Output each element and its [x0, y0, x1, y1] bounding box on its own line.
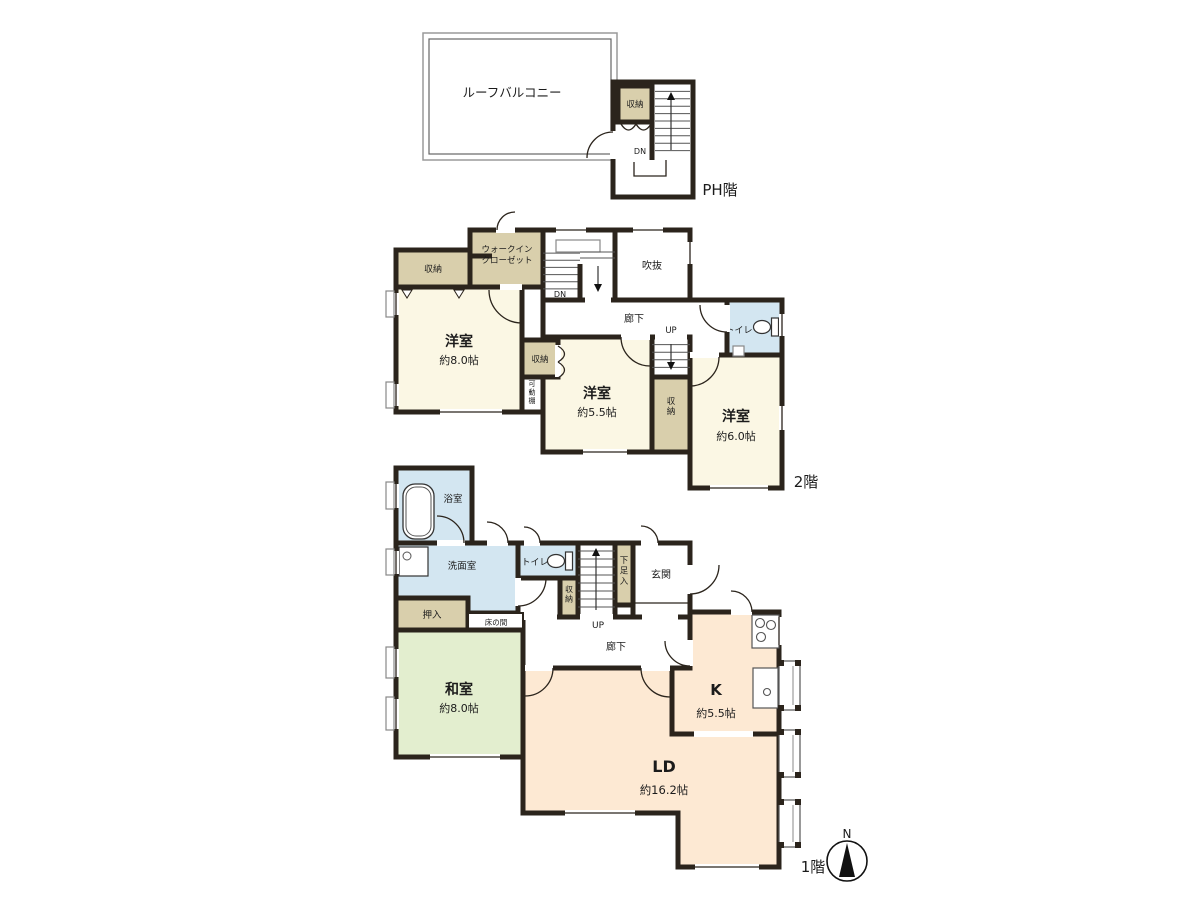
door-entrance-side-arc: [690, 565, 719, 594]
label-storage-east: 収納: [667, 396, 676, 417]
bay-window-ld-2-corner: [778, 842, 784, 848]
label-up-1f: UP: [592, 621, 605, 631]
label-dn-2f: DN: [554, 290, 566, 299]
hall-ab-opening: [524, 614, 557, 620]
label-oshiire: 押入: [422, 609, 442, 621]
bay-window-ld-2-corner: [795, 799, 801, 805]
label-washitsu-size: 約8.0帖: [439, 701, 479, 715]
bay-window-kitchen-corner: [795, 705, 801, 711]
label-entrance: 玄関: [651, 568, 671, 581]
label-washitsu: 和室: [445, 681, 473, 698]
bay-window-ld-1-corner: [778, 729, 784, 735]
bathtub: [403, 484, 434, 539]
shutter-tab-1f-4: [386, 697, 394, 730]
door-bedroom8-gap: [500, 284, 522, 290]
compass-needle: [839, 843, 855, 877]
door-ld-left-gap: [525, 665, 553, 671]
toilet-2f-remote: [733, 346, 744, 356]
label-bedroom8: 洋室: [445, 333, 473, 350]
label-hall-2f: 廊下: [624, 312, 644, 325]
toilet-1f-fixture-bowl: [548, 555, 565, 568]
door-toilet2f-gap: [724, 305, 730, 332]
floorplan-svg: ルーフバルコニーDN収納PH階DN吹抜廊下UP収納ウォークインクローゼットトイレ…: [0, 0, 1200, 900]
compass: [827, 841, 867, 881]
shutter-tab-1f-2: [386, 549, 394, 575]
label-bathroom: 浴室: [443, 493, 462, 505]
door-wic-gap: [496, 227, 515, 233]
label-ph-dn: DN: [634, 147, 646, 156]
bay-window-ld-2-corner: [795, 842, 801, 848]
label-bedroom55-size: 約5.5帖: [577, 405, 617, 419]
toilet-2f-fixture-bowl: [754, 321, 771, 334]
label-bedroom8-size: 約8.0帖: [439, 353, 479, 367]
stair-hall-opening: [580, 614, 613, 620]
door-ld-right-gap: [641, 665, 670, 671]
bay-window-ld-1-box: [779, 730, 800, 777]
door-kitchen-hall-gap: [687, 640, 693, 666]
toilet-1f-fixture-tank: [566, 552, 573, 570]
shutter-tab-1f-1: [386, 482, 394, 509]
bay-window-ld-1-corner: [795, 772, 801, 778]
door-bath-gap: [437, 540, 465, 546]
door-ext-b-gap: [524, 540, 540, 546]
toilet-2f-fixture-tank: [772, 318, 779, 336]
door-bedroom55-gap: [621, 334, 650, 340]
label-2f: 2階: [794, 473, 819, 491]
shutter-tab-1f-3: [386, 647, 394, 678]
label-ld: LD: [652, 757, 675, 776]
label-bedroom6: 洋室: [722, 408, 750, 425]
door-ext-a-arc: [487, 522, 508, 543]
ph-door-gap: [610, 131, 616, 159]
hall-1f-a: [518, 578, 560, 617]
label-k-size: 約5.5帖: [696, 706, 736, 720]
bay-window-ld-1-corner: [795, 729, 801, 735]
stove: [752, 615, 779, 648]
label-compass-n: N: [843, 827, 852, 841]
bay-window-ld-2-corner: [778, 799, 784, 805]
label-ld-size: 約16.2帖: [640, 783, 689, 797]
label-toilet-1f: トイレ: [521, 558, 548, 568]
kitchen-sink-body: [753, 668, 778, 708]
label-1f: 1階: [801, 858, 826, 876]
door-kitchen-back-gap: [731, 609, 752, 615]
bay-window-ld-1-corner: [778, 772, 784, 778]
label-wic-1: ウォークイン: [481, 245, 532, 255]
label-storage-1f: 収納: [565, 584, 573, 604]
label-shoe-storage: 下足入: [620, 556, 629, 587]
bay-window-kitchen-box: [779, 661, 800, 710]
label-bedroom6-size: 約6.0帖: [716, 429, 756, 443]
bay-window-ld-2: [778, 799, 801, 848]
k-ld-opening: [694, 731, 753, 737]
bay-window-kitchen-corner: [778, 660, 784, 666]
door-kitchen-back-arc: [731, 591, 752, 612]
label-ph-storage: 収納: [626, 99, 643, 110]
label-storage-2f-nw: 収納: [424, 263, 442, 275]
label-kadodana: 可動棚: [529, 380, 536, 405]
label-storage-mid: 収納: [531, 354, 548, 365]
label-hall-1f: 廊下: [606, 640, 626, 653]
bay-window-kitchen: [778, 660, 801, 711]
label-up-2f: UP: [665, 326, 676, 336]
dn-hall-opening: [585, 297, 611, 303]
label-wic-2: クローゼット: [481, 255, 532, 266]
kitchen-sink: [753, 668, 778, 708]
label-washroom: 洗面室: [448, 560, 477, 572]
washbasin: [399, 547, 428, 576]
label-fukinuke: 吹抜: [642, 259, 662, 272]
label-k: K: [710, 681, 723, 699]
washbasin-top: [399, 547, 428, 576]
label-ph-floor: PH階: [702, 181, 737, 199]
label-bedroom55: 洋室: [583, 385, 611, 402]
bay-window-ld-2-box: [779, 800, 800, 847]
door-entrance-top-gap: [641, 540, 658, 546]
bay-window-ld-1: [778, 729, 801, 778]
floorplan-page: ルーフバルコニーDN収納PH階DN吹抜廊下UP収納ウォークインクローゼットトイレ…: [0, 0, 1200, 900]
bay-window-kitchen-corner: [778, 705, 784, 711]
door-ext-a-gap: [487, 540, 508, 546]
door-bedroom6-gap: [690, 352, 719, 358]
dn-landing-guide: [556, 240, 600, 252]
shutter-tab-2f-2: [386, 382, 394, 408]
door-washroom-gap: [515, 578, 521, 606]
entrance-hall-opening: [642, 614, 678, 620]
label-tokonoma: 床の間: [485, 617, 508, 627]
label-roof-balcony: ルーフバルコニー: [462, 85, 561, 100]
shutter-tab-2f-1: [386, 291, 394, 317]
bay-window-kitchen-corner: [795, 660, 801, 666]
door-entrance-side-gap: [687, 565, 693, 594]
